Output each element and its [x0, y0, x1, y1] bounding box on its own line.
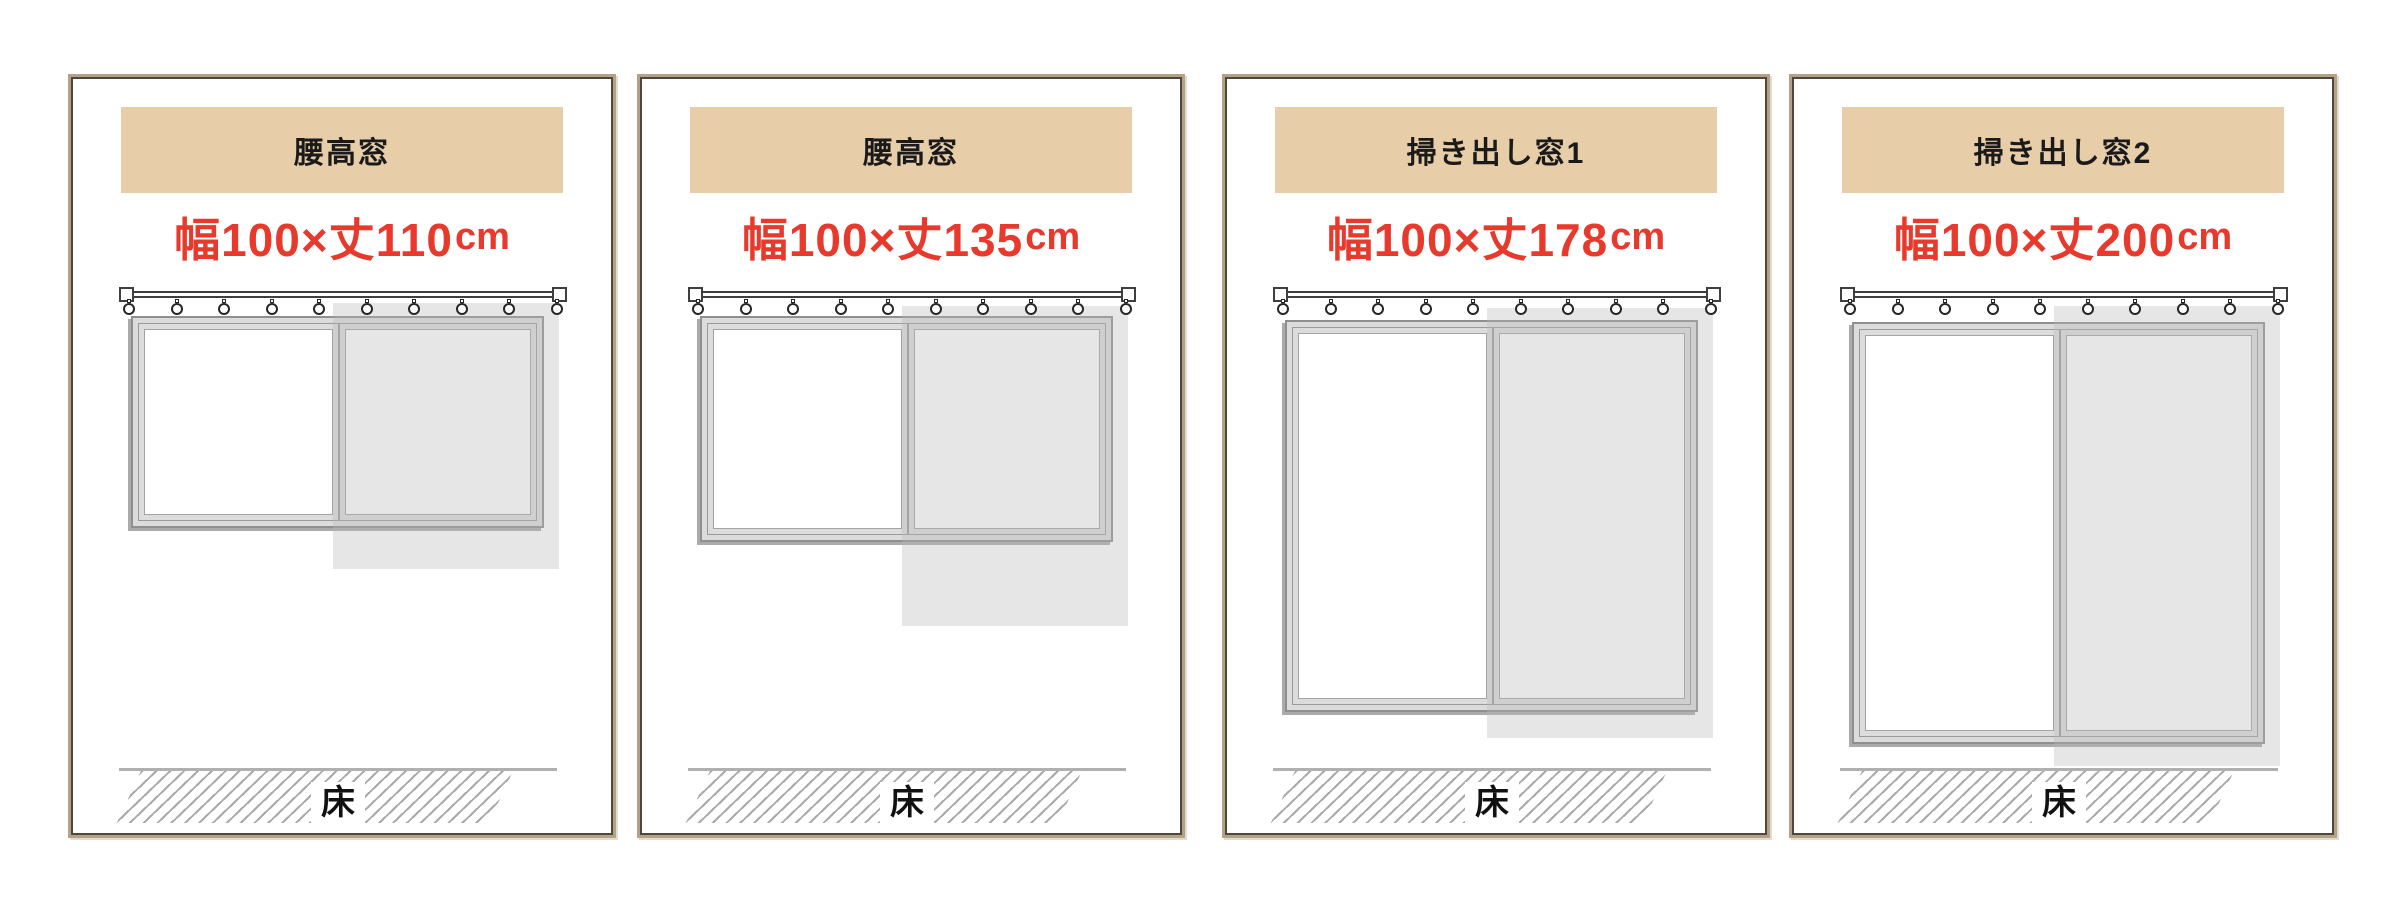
curtain-ring-icon	[1025, 303, 1037, 315]
curtain-ring-icon	[266, 303, 278, 315]
floor-label-wrap: 床	[1273, 775, 1711, 824]
floor-line	[1273, 768, 1711, 771]
curtain-rings	[1844, 299, 2284, 315]
size-label: 幅100×丈200cm	[1792, 205, 2334, 269]
curtain-rail	[1279, 291, 1715, 298]
curtain-overlay	[902, 306, 1128, 626]
curtain-ring-icon	[740, 303, 752, 315]
window-pane	[1865, 335, 2054, 731]
curtain-ring-icon	[787, 303, 799, 315]
curtain-ring-icon	[977, 303, 989, 315]
curtain-ring-icon	[2082, 303, 2094, 315]
floor-label-wrap: 床	[119, 775, 557, 824]
window-sash-left	[138, 323, 339, 521]
curtain-ring-icon	[171, 303, 183, 315]
curtain-ring-icon	[1844, 303, 1856, 315]
curtain-ring-icon	[408, 303, 420, 315]
curtain-ring-icon	[313, 303, 325, 315]
window-sash-left	[707, 323, 908, 535]
curtain-ring-icon	[1562, 303, 1574, 315]
curtain-ring-icon	[1277, 303, 1289, 315]
curtain-overlay	[1487, 308, 1713, 738]
curtain-rings	[1277, 299, 1717, 315]
panel-title-bar: 腰高窓	[121, 107, 563, 193]
curtain-ring-icon	[1325, 303, 1337, 315]
size-unit: cm	[1025, 216, 1080, 259]
size-label: 幅100×丈135cm	[640, 205, 1182, 269]
curtain-rings	[692, 299, 1132, 315]
size-dimensions: 幅100×丈178	[1327, 204, 1608, 270]
size-label: 幅100×丈110cm	[71, 205, 613, 269]
curtain-ring-icon	[1610, 303, 1622, 315]
curtain-overlay	[2054, 306, 2280, 766]
curtain-ring-icon	[692, 303, 704, 315]
panel-title: 腰高窓	[294, 128, 390, 172]
size-unit: cm	[1610, 216, 1665, 259]
curtain-ring-icon	[1987, 303, 1999, 315]
curtain-ring-icon	[930, 303, 942, 315]
panel-title: 腰高窓	[863, 128, 959, 172]
window-sash-left	[1859, 329, 2060, 737]
floor-label: 床	[880, 782, 934, 824]
panel-waist-window-110: 腰高窓 幅100×丈110cm 床	[68, 74, 616, 838]
window-sash-left	[1292, 327, 1493, 705]
window-pane	[1298, 333, 1487, 699]
curtain-ring-icon	[1467, 303, 1479, 315]
floor-label: 床	[1465, 782, 1519, 824]
curtain-ring-icon	[218, 303, 230, 315]
curtain-ring-icon	[1705, 303, 1717, 315]
floor-line	[1840, 768, 2278, 771]
curtain-ring-icon	[2224, 303, 2236, 315]
panel-floor-window-178: 掃き出し窓1 幅100×丈178cm 床	[1222, 74, 1770, 838]
panel-title: 掃き出し窓2	[1974, 128, 2153, 172]
curtain-rail	[1846, 291, 2282, 298]
curtain-ring-icon	[1420, 303, 1432, 315]
curtain-ring-icon	[1657, 303, 1669, 315]
curtain-ring-icon	[456, 303, 468, 315]
curtain-ring-icon	[2034, 303, 2046, 315]
floor-line	[119, 768, 557, 771]
curtain-ring-icon	[1120, 303, 1132, 315]
curtain-ring-icon	[1892, 303, 1904, 315]
size-dimensions: 幅100×丈200	[1894, 204, 2175, 270]
floor-label: 床	[311, 782, 365, 824]
curtain-ring-icon	[551, 303, 563, 315]
panel-title-bar: 腰高窓	[690, 107, 1132, 193]
panel-title: 掃き出し窓1	[1407, 128, 1586, 172]
size-unit: cm	[455, 216, 510, 259]
panel-title-bar: 掃き出し窓1	[1275, 107, 1717, 193]
window-pane	[144, 329, 333, 515]
curtain-ring-icon	[1372, 303, 1384, 315]
curtain-ring-icon	[1939, 303, 1951, 315]
curtain-ring-icon	[2129, 303, 2141, 315]
floor-label-wrap: 床	[688, 775, 1126, 824]
panel-floor-window-200: 掃き出し窓2 幅100×丈200cm 床	[1789, 74, 2337, 838]
curtain-ring-icon	[1515, 303, 1527, 315]
size-unit: cm	[2177, 216, 2232, 259]
curtain-ring-icon	[1072, 303, 1084, 315]
size-dimensions: 幅100×丈135	[742, 204, 1023, 270]
curtain-ring-icon	[882, 303, 894, 315]
floor-line	[688, 768, 1126, 771]
curtain-ring-icon	[2177, 303, 2189, 315]
size-label: 幅100×丈178cm	[1225, 205, 1767, 269]
floor-label: 床	[2032, 782, 2086, 824]
window-pane	[713, 329, 902, 529]
curtain-ring-icon	[2272, 303, 2284, 315]
floor-label-wrap: 床	[1840, 775, 2278, 824]
curtain-ring-icon	[123, 303, 135, 315]
panel-waist-window-135: 腰高窓 幅100×丈135cm 床	[637, 74, 1185, 838]
curtain-rail	[694, 291, 1130, 298]
curtain-overlay	[333, 303, 559, 569]
curtain-ring-icon	[361, 303, 373, 315]
curtain-size-diagram: { "colors": { "header_bg": "#e8cda9", "a…	[0, 0, 2400, 900]
curtain-rail	[125, 291, 561, 298]
curtain-ring-icon	[503, 303, 515, 315]
panel-title-bar: 掃き出し窓2	[1842, 107, 2284, 193]
curtain-rings	[123, 299, 563, 315]
size-dimensions: 幅100×丈110	[174, 204, 453, 270]
curtain-ring-icon	[835, 303, 847, 315]
